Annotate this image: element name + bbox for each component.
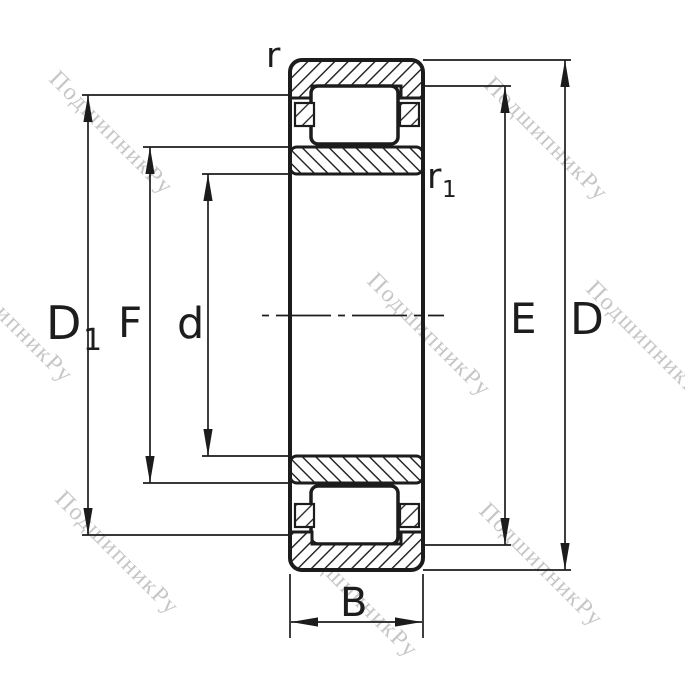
label-r1-sub: 1	[442, 177, 457, 203]
cage-top-left	[295, 103, 314, 126]
label-d: d	[177, 299, 204, 349]
label-E: E	[510, 294, 537, 343]
bearing-diagram: ПодшипникРу ПодшипникРу ПодшипникРу Подш…	[0, 0, 685, 689]
arrowhead	[203, 174, 212, 201]
arrowhead	[145, 456, 154, 483]
arrowhead	[291, 617, 318, 626]
cage-bottom-right	[400, 504, 419, 527]
label-D1-base: D	[46, 296, 81, 350]
inner-ring-bottom-section	[290, 456, 423, 483]
arrowhead	[395, 617, 422, 626]
label-F: F	[118, 298, 142, 347]
watermark: ПодшипникРу	[474, 498, 609, 633]
label-r: r	[266, 36, 281, 76]
cage-top-right	[400, 103, 419, 126]
label-r1-base: r	[427, 157, 442, 197]
label-B: B	[340, 580, 367, 626]
watermark: ПодшипникРу	[50, 486, 185, 621]
arrowhead	[203, 429, 212, 456]
inner-ring-top-section	[290, 147, 423, 174]
watermark: ПодшипникРу	[479, 72, 614, 207]
roller-bottom	[311, 486, 398, 544]
label-D: D	[570, 294, 604, 345]
label-D1-sub: 1	[83, 323, 102, 358]
arrowhead	[560, 543, 569, 570]
bearing-drawing-canvas: ПодшипникРу ПодшипникРу ПодшипникРу Подш…	[0, 0, 685, 689]
cage-bottom-left	[295, 504, 314, 527]
arrowhead	[560, 60, 569, 87]
roller-top	[311, 86, 398, 144]
watermark: ПодшипникРу	[44, 66, 179, 201]
